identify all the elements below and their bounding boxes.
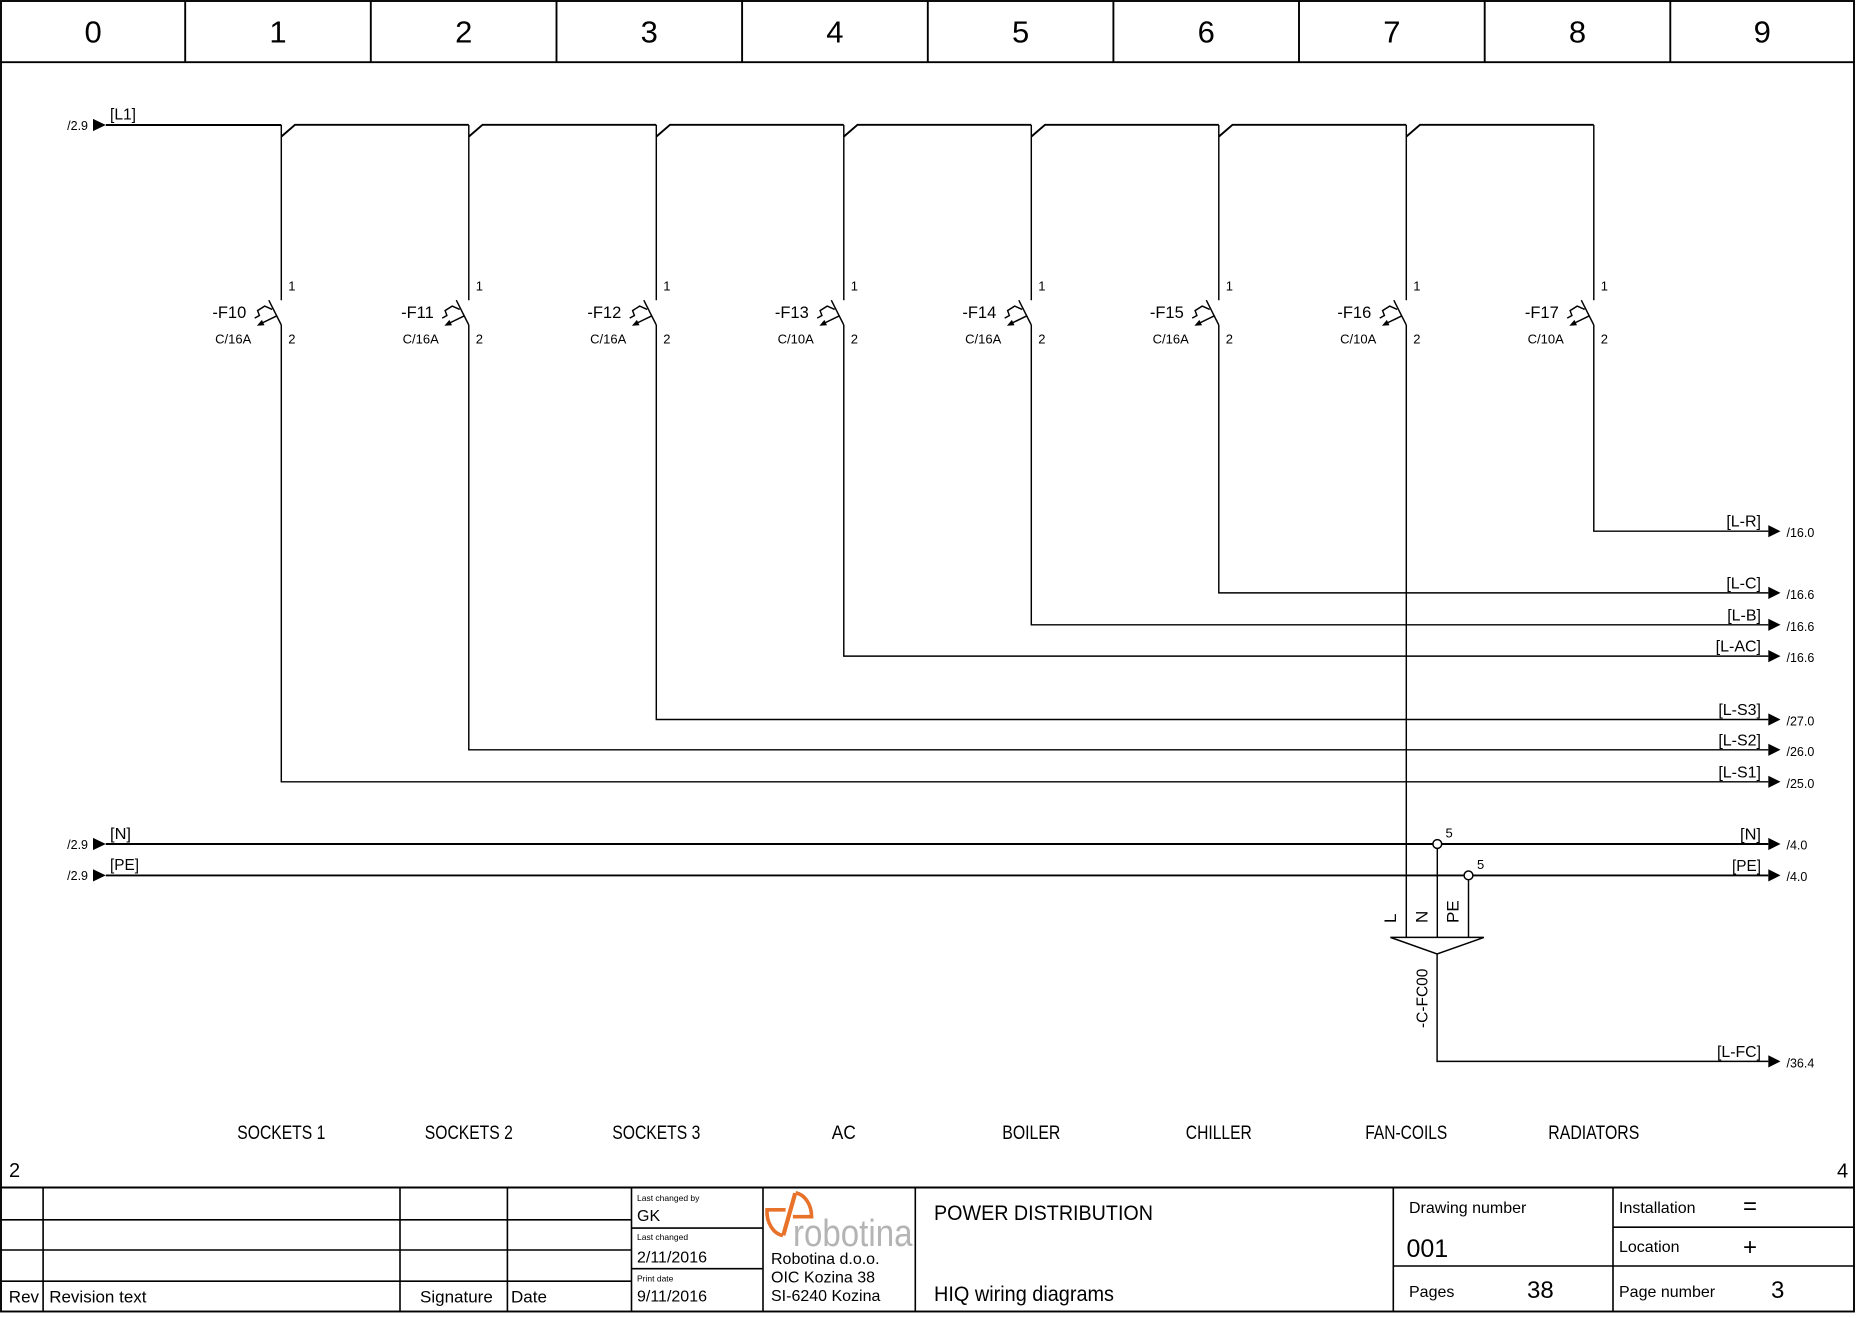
svg-text:Signature: Signature (420, 1287, 493, 1306)
svg-text:C/10A: C/10A (1340, 332, 1376, 347)
svg-text:5: 5 (1012, 15, 1029, 50)
svg-text:L: L (1381, 914, 1400, 923)
svg-text:POWER DISTRIBUTION: POWER DISTRIBUTION (934, 1202, 1153, 1225)
svg-text:2: 2 (1038, 332, 1045, 347)
svg-text:[N]: [N] (110, 826, 131, 843)
svg-text:-F10: -F10 (212, 304, 246, 322)
svg-text:9/11/2016: 9/11/2016 (637, 1289, 707, 1306)
svg-text:SI-6240 Kozina: SI-6240 Kozina (771, 1288, 881, 1305)
svg-text:2: 2 (851, 332, 858, 347)
svg-text:C/16A: C/16A (590, 332, 626, 347)
svg-text:Date: Date (511, 1287, 547, 1306)
svg-text:[L-R]: [L-R] (1726, 514, 1761, 531)
svg-text:-F16: -F16 (1337, 304, 1371, 322)
svg-text:5: 5 (1477, 857, 1484, 872)
svg-text:0: 0 (84, 15, 101, 50)
svg-text:C/16A: C/16A (215, 332, 251, 347)
svg-text:Page number: Page number (1619, 1284, 1716, 1301)
svg-text:1: 1 (1226, 279, 1233, 294)
svg-text:Location: Location (1619, 1239, 1680, 1256)
svg-text:C/16A: C/16A (965, 332, 1001, 347)
svg-text:2: 2 (663, 332, 670, 347)
svg-text:/4.0: /4.0 (1787, 839, 1808, 853)
svg-text:-F12: -F12 (587, 304, 621, 322)
svg-text:/4.0: /4.0 (1787, 870, 1808, 884)
svg-text:/26.0: /26.0 (1787, 745, 1815, 759)
svg-text:1: 1 (851, 279, 858, 294)
svg-text:C/16A: C/16A (1153, 332, 1189, 347)
svg-text:/16.0: /16.0 (1787, 526, 1815, 540)
svg-text:2: 2 (1226, 332, 1233, 347)
svg-text:-F15: -F15 (1150, 304, 1184, 322)
svg-text:2: 2 (455, 15, 472, 50)
svg-text:/2.9: /2.9 (67, 869, 88, 883)
svg-text:[N]: [N] (1740, 827, 1761, 844)
svg-text:HIQ wiring diagrams: HIQ wiring diagrams (934, 1283, 1114, 1306)
svg-text:robotina: robotina (793, 1213, 913, 1255)
svg-text:N: N (1413, 911, 1432, 923)
svg-text:3: 3 (641, 15, 658, 50)
svg-text:1: 1 (288, 279, 295, 294)
svg-text:RADIATORS: RADIATORS (1548, 1122, 1639, 1144)
svg-text:[L-C]: [L-C] (1726, 575, 1761, 592)
svg-text:1: 1 (476, 279, 483, 294)
svg-text:[L-S3]: [L-S3] (1718, 702, 1761, 719)
svg-text:Last changed by: Last changed by (637, 1193, 700, 1203)
svg-text:FAN-COILS: FAN-COILS (1365, 1122, 1447, 1144)
svg-text:1: 1 (1038, 279, 1045, 294)
svg-text:CHILLER: CHILLER (1186, 1122, 1252, 1144)
svg-text:Drawing number: Drawing number (1409, 1200, 1527, 1217)
svg-text:2: 2 (288, 332, 295, 347)
svg-text:/27.0: /27.0 (1787, 715, 1815, 729)
svg-text:/25.0: /25.0 (1787, 777, 1815, 791)
svg-text:[L-S2]: [L-S2] (1718, 732, 1761, 749)
svg-text:Last changed: Last changed (637, 1232, 688, 1242)
svg-text:/2.9: /2.9 (67, 838, 88, 852)
svg-text:8: 8 (1569, 15, 1586, 50)
svg-text:[PE]: [PE] (110, 857, 139, 874)
svg-text:GK: GK (637, 1208, 660, 1225)
svg-text:[L-AC]: [L-AC] (1716, 639, 1761, 656)
svg-text:2/11/2016: 2/11/2016 (637, 1249, 707, 1266)
svg-text:=: = (1743, 1193, 1757, 1220)
svg-text:/16.6: /16.6 (1787, 651, 1815, 665)
svg-text:4: 4 (826, 15, 843, 50)
svg-text:[L-B]: [L-B] (1727, 607, 1761, 624)
svg-text:BOILER: BOILER (1002, 1122, 1060, 1144)
svg-text:[PE]: [PE] (1732, 858, 1761, 875)
svg-text:5: 5 (1446, 826, 1453, 841)
svg-text:1: 1 (269, 15, 286, 50)
svg-text:Installation: Installation (1619, 1200, 1696, 1217)
svg-text:1: 1 (1413, 279, 1420, 294)
svg-text:C/10A: C/10A (778, 332, 814, 347)
svg-text:-F13: -F13 (775, 304, 809, 322)
svg-text:SOCKETS 1: SOCKETS 1 (237, 1122, 325, 1144)
svg-text:/2.9: /2.9 (67, 119, 88, 133)
svg-text:1: 1 (663, 279, 670, 294)
svg-text:-C-FC00: -C-FC00 (1415, 968, 1432, 1028)
svg-text:3: 3 (1771, 1277, 1784, 1304)
svg-text:[L-S1]: [L-S1] (1718, 764, 1761, 781)
svg-text:-F14: -F14 (962, 304, 996, 322)
svg-text:C/10A: C/10A (1528, 332, 1564, 347)
svg-text:1: 1 (1601, 279, 1608, 294)
svg-text:2: 2 (1601, 332, 1608, 347)
svg-text:Rev: Rev (9, 1287, 40, 1306)
svg-text:9: 9 (1754, 15, 1771, 50)
svg-text:[L-FC]: [L-FC] (1717, 1044, 1761, 1061)
svg-text:38: 38 (1527, 1277, 1554, 1304)
svg-text:AC: AC (832, 1122, 856, 1144)
svg-text:7: 7 (1383, 15, 1400, 50)
svg-text:-F17: -F17 (1525, 304, 1559, 322)
svg-text:Pages: Pages (1409, 1284, 1454, 1301)
svg-text:2: 2 (476, 332, 483, 347)
svg-text:001: 001 (1407, 1235, 1449, 1263)
svg-text:+: + (1743, 1234, 1757, 1261)
svg-text:-F11: -F11 (401, 304, 434, 322)
svg-text:Revision text: Revision text (49, 1287, 147, 1306)
svg-text:OIC Kozina 38: OIC Kozina 38 (771, 1270, 875, 1287)
svg-text:[L1]: [L1] (110, 107, 136, 124)
svg-text:/16.6: /16.6 (1787, 588, 1815, 602)
svg-text:SOCKETS 3: SOCKETS 3 (612, 1122, 700, 1144)
svg-text:4: 4 (1837, 1161, 1848, 1183)
svg-text:6: 6 (1198, 15, 1215, 50)
svg-text:SOCKETS 2: SOCKETS 2 (425, 1122, 513, 1144)
svg-text:2: 2 (9, 1160, 20, 1182)
svg-text:/16.6: /16.6 (1787, 620, 1815, 634)
svg-text:C/16A: C/16A (403, 332, 439, 347)
svg-text:Print date: Print date (637, 1274, 674, 1284)
svg-text:2: 2 (1413, 332, 1420, 347)
svg-text:Robotina d.o.o.: Robotina d.o.o. (771, 1251, 880, 1268)
svg-text:PE: PE (1444, 900, 1463, 923)
svg-text:/36.4: /36.4 (1787, 1056, 1815, 1070)
